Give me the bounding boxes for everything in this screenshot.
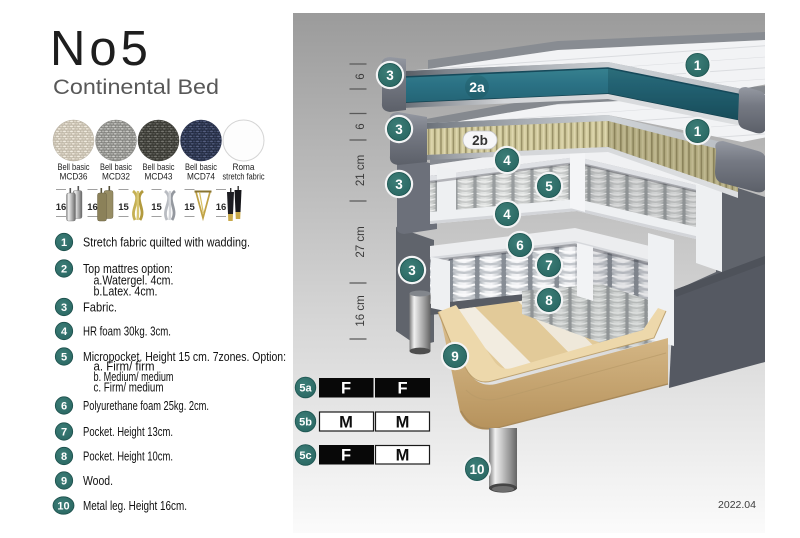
svg-text:5: 5 <box>545 179 553 194</box>
svg-text:F: F <box>397 380 407 398</box>
svg-text:Continental Bed: Continental Bed <box>53 75 219 99</box>
svg-text:5c: 5c <box>299 450 311 462</box>
svg-text:7: 7 <box>545 258 553 273</box>
svg-text:b.Latex. 4cm.: b.Latex. 4cm. <box>94 285 158 299</box>
svg-text:6: 6 <box>355 123 367 129</box>
svg-text:Stretch fabric quilted with wa: Stretch fabric quilted with wadding. <box>83 236 250 250</box>
svg-text:3: 3 <box>386 68 394 83</box>
svg-text:Pocket. Height 13cm.: Pocket. Height 13cm. <box>83 425 173 439</box>
svg-text:Fabric.: Fabric. <box>83 301 117 315</box>
svg-text:21 cm: 21 cm <box>355 155 367 186</box>
svg-text:2a: 2a <box>469 79 485 95</box>
svg-text:M: M <box>396 414 410 432</box>
svg-text:F: F <box>341 447 351 465</box>
svg-text:MCD43: MCD43 <box>145 172 173 183</box>
svg-text:M: M <box>339 414 353 432</box>
svg-text:2022.04: 2022.04 <box>718 499 756 511</box>
svg-text:6: 6 <box>355 73 367 79</box>
svg-text:3: 3 <box>408 263 416 278</box>
svg-text:No5: No5 <box>50 22 152 76</box>
svg-text:8: 8 <box>61 451 67 463</box>
svg-text:1: 1 <box>694 58 702 73</box>
svg-text:M: M <box>396 447 410 465</box>
svg-text:6: 6 <box>516 238 524 253</box>
svg-text:HR foam 30kg. 3cm.: HR foam 30kg. 3cm. <box>83 325 171 339</box>
svg-text:MCD74: MCD74 <box>187 172 215 183</box>
svg-text:5b: 5b <box>299 417 312 429</box>
svg-text:5: 5 <box>61 352 67 364</box>
svg-text:9: 9 <box>451 349 459 364</box>
svg-text:3: 3 <box>395 122 403 137</box>
svg-text:F: F <box>341 380 351 398</box>
svg-text:15: 15 <box>151 202 162 213</box>
svg-text:16: 16 <box>56 202 67 213</box>
svg-text:9: 9 <box>61 476 67 488</box>
svg-text:3: 3 <box>61 302 67 314</box>
svg-text:2: 2 <box>61 264 67 276</box>
svg-text:MCD36: MCD36 <box>60 172 88 183</box>
svg-text:1: 1 <box>694 124 702 139</box>
svg-text:10: 10 <box>469 462 484 477</box>
svg-text:15: 15 <box>118 202 129 213</box>
svg-text:8: 8 <box>545 293 553 308</box>
svg-text:1: 1 <box>61 237 67 249</box>
svg-text:stretch fabric: stretch fabric <box>223 172 265 183</box>
svg-text:Metal leg. Height 16cm.: Metal leg. Height 16cm. <box>83 499 187 513</box>
svg-text:MCD32: MCD32 <box>102 172 130 183</box>
svg-text:5a: 5a <box>299 383 312 395</box>
svg-text:6: 6 <box>61 401 67 413</box>
svg-text:10: 10 <box>57 501 69 513</box>
svg-text:15: 15 <box>184 202 195 213</box>
svg-text:16: 16 <box>216 202 227 213</box>
svg-text:Wood.: Wood. <box>83 474 113 488</box>
svg-text:27 cm: 27 cm <box>355 226 367 257</box>
svg-text:3: 3 <box>395 177 403 192</box>
svg-text:16: 16 <box>87 202 98 213</box>
svg-text:c. Firm/ medium: c. Firm/ medium <box>94 381 164 395</box>
svg-text:7: 7 <box>61 427 67 439</box>
svg-text:16 cm: 16 cm <box>355 295 367 326</box>
svg-text:4: 4 <box>503 207 511 222</box>
svg-text:4: 4 <box>61 326 68 338</box>
svg-text:Polyurethane foam 25kg. 2cm.: Polyurethane foam 25kg. 2cm. <box>83 399 209 413</box>
svg-text:4: 4 <box>503 153 511 168</box>
svg-text:2b: 2b <box>472 133 488 148</box>
svg-text:Pocket. Height 10cm.: Pocket. Height 10cm. <box>83 450 173 464</box>
